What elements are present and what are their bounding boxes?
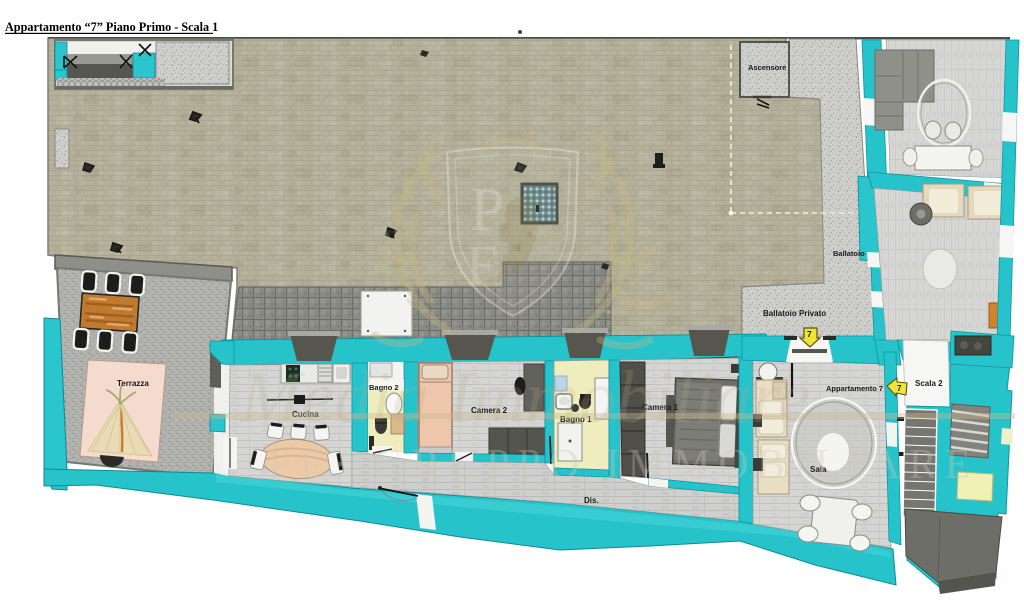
svg-text:Media Immobiliare: Media Immobiliare <box>239 357 811 439</box>
svg-text:Ballatoio Privato: Ballatoio Privato <box>763 309 826 318</box>
svg-text:7: 7 <box>807 329 812 339</box>
svg-text:Ballatoio: Ballatoio <box>833 249 865 258</box>
svg-text:Scala 2: Scala 2 <box>915 379 943 388</box>
svg-text:Appartamento 7: Appartamento 7 <box>826 384 883 393</box>
svg-text:Dis.: Dis. <box>584 496 599 505</box>
svg-text:E: E <box>466 235 500 297</box>
svg-text:P: P <box>470 176 504 244</box>
svg-text:Ascensore: Ascensore <box>748 63 786 72</box>
svg-text:7: 7 <box>897 384 902 393</box>
svg-text:Terrazza: Terrazza <box>117 379 149 388</box>
svg-text:PE· GRUPPO IMMOBILIARE: PE· GRUPPO IMMOBILIARE <box>268 442 978 488</box>
svg-text:Appartamento “7” Piano Primo -: Appartamento “7” Piano Primo - Scala 1 <box>5 20 218 34</box>
